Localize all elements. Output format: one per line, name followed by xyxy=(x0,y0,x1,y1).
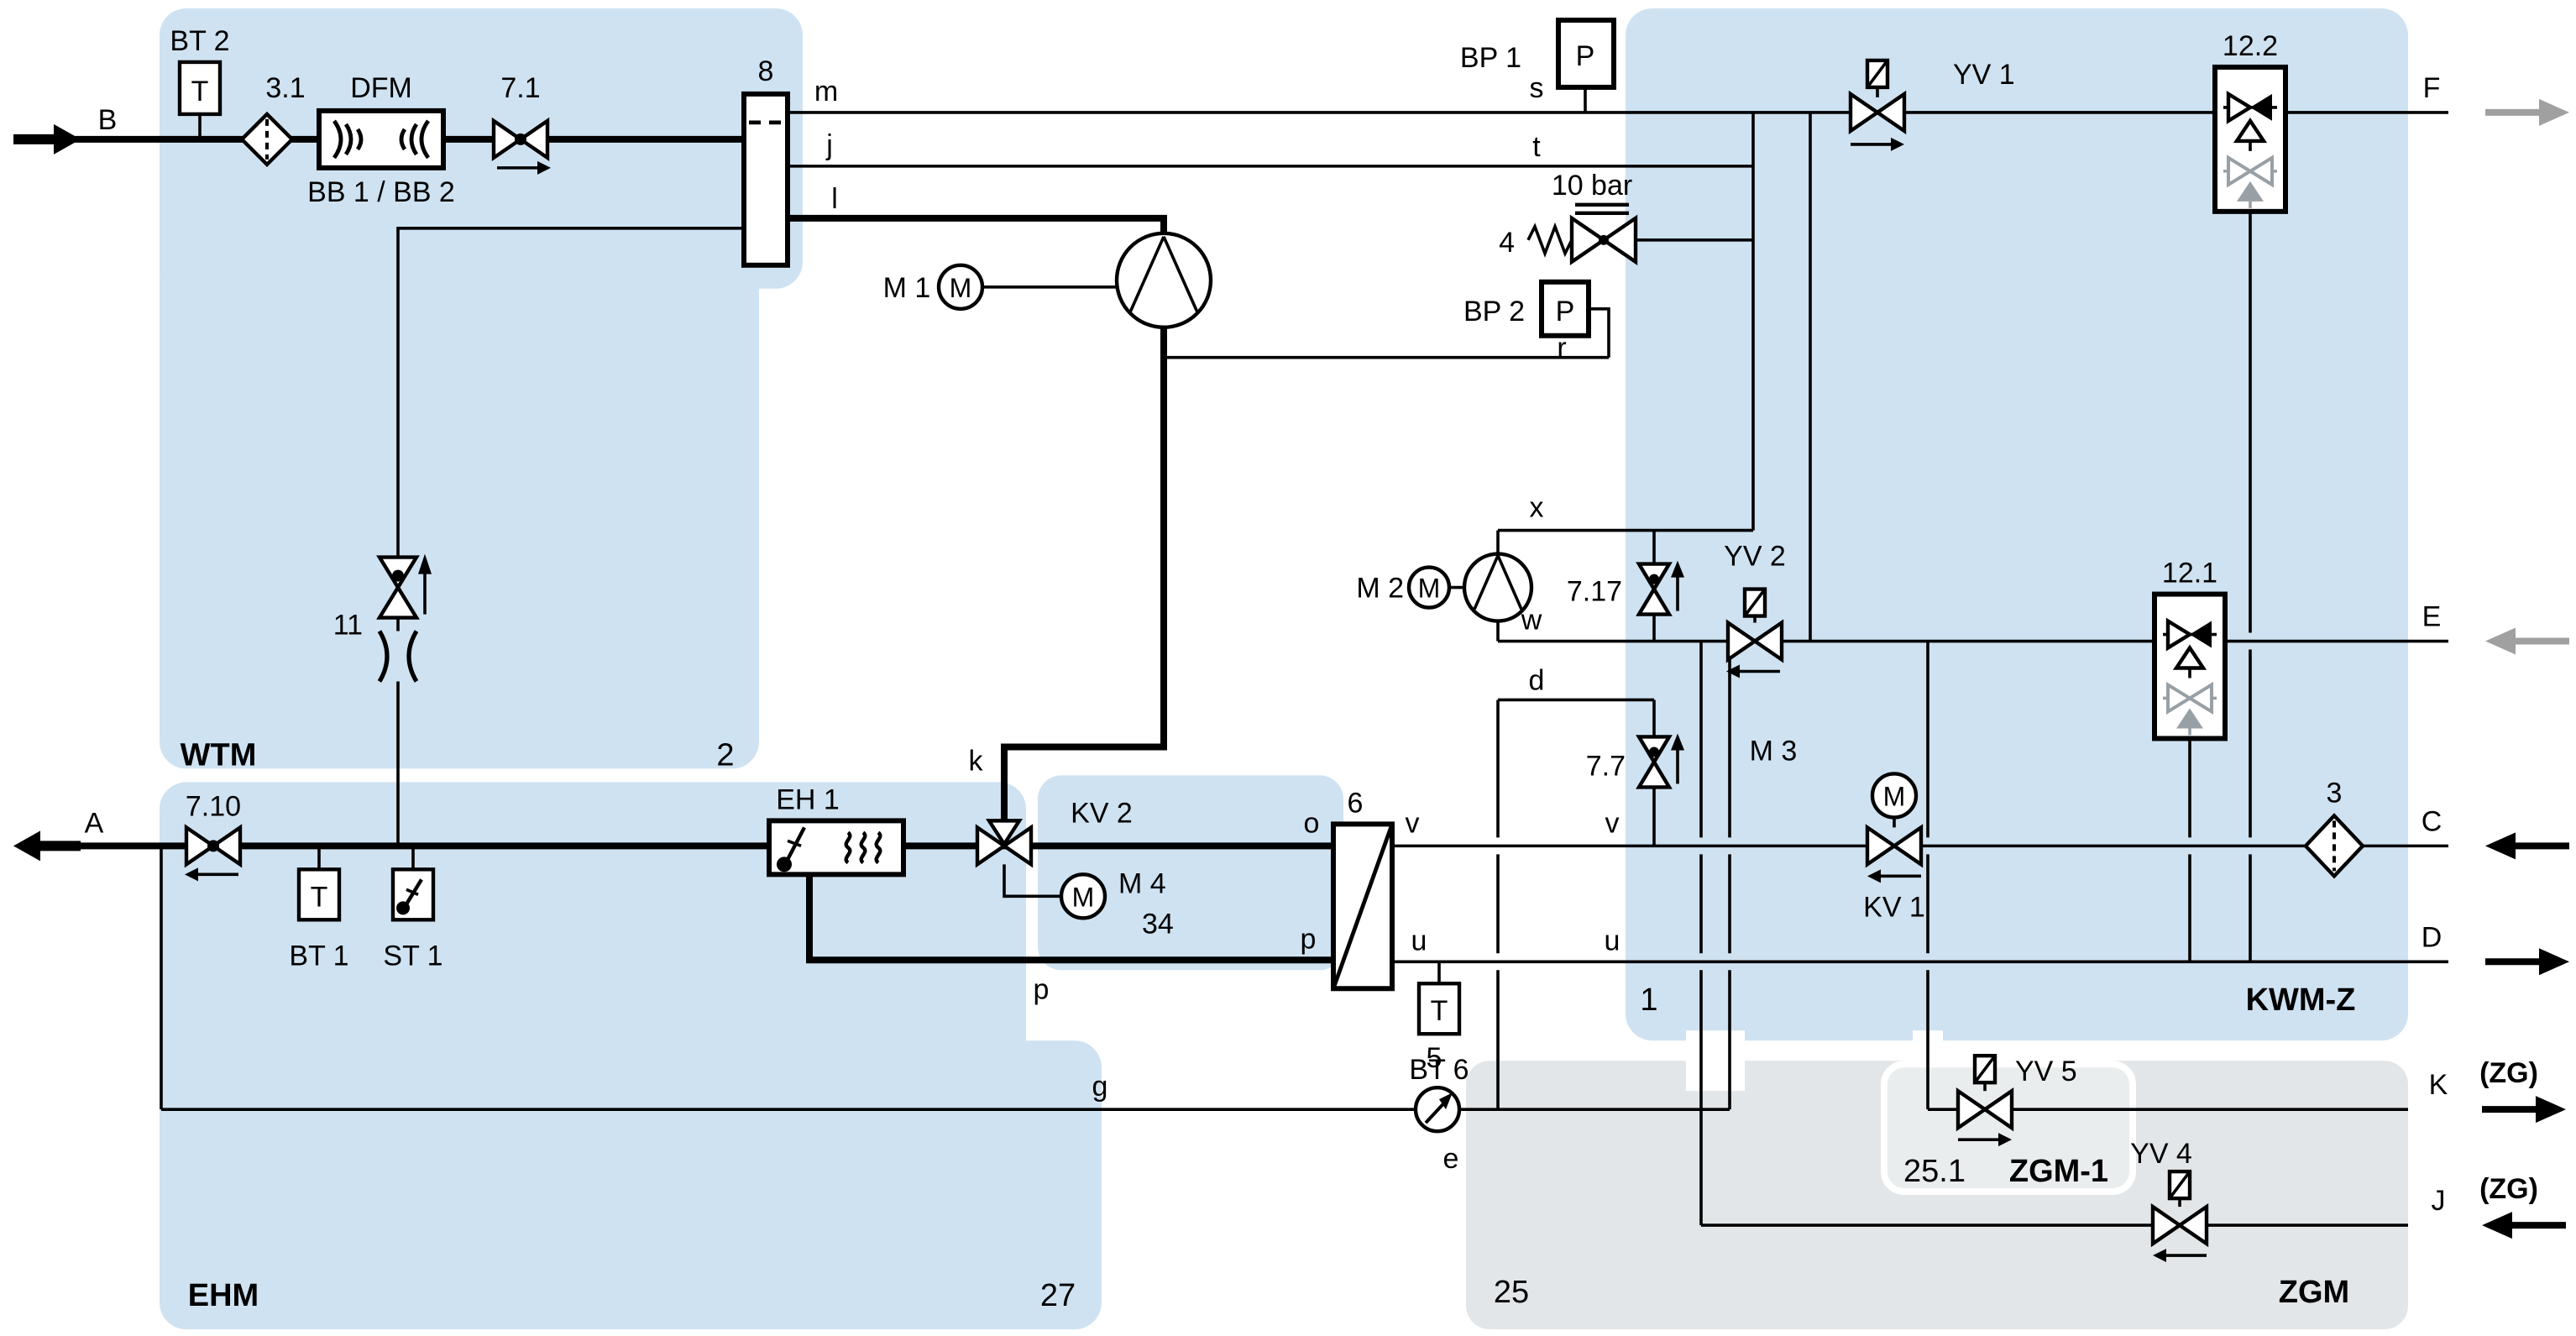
zone-ehm-label: EHM xyxy=(188,1278,259,1313)
terminal-j-label: J xyxy=(2432,1185,2446,1217)
port-k-label: k xyxy=(969,745,984,777)
eh1-label: EH 1 xyxy=(776,783,840,815)
dfm-label: DFM xyxy=(350,72,412,104)
zone-ehm-number: 27 xyxy=(1040,1278,1076,1313)
port-u1-label: u xyxy=(1411,925,1427,956)
kv1-label: KV 1 xyxy=(1863,891,1925,923)
port-p2-label: p xyxy=(1301,923,1317,955)
m3-label: M 3 xyxy=(1750,735,1798,767)
manifold-8-box xyxy=(744,94,788,265)
arrow-e-icon xyxy=(2485,628,2516,655)
zone-zgm1-number: 25.1 xyxy=(1903,1154,1966,1189)
bt2-label: BT 2 xyxy=(170,25,229,57)
terminal-j-zg-label: (ZG) xyxy=(2479,1173,2538,1205)
check-12_1-label: 12.1 xyxy=(2162,558,2217,589)
zone-kv2-label: KV 2 xyxy=(1071,797,1133,829)
arrow-f-icon xyxy=(2539,99,2569,126)
zone-wtm-label: WTM xyxy=(181,737,257,773)
m2-letter: M xyxy=(1418,574,1441,604)
m1-letter: M xyxy=(950,273,972,303)
port-l-label: l xyxy=(831,183,838,215)
arrow-a-icon xyxy=(13,830,40,861)
check-valve-12_1-icon xyxy=(2155,595,2225,739)
pump-m1-icon xyxy=(1117,233,1211,327)
gauge-5-label: 5 xyxy=(1427,1042,1442,1074)
port-m-label: m xyxy=(814,76,838,107)
arrow-k-icon xyxy=(2536,1096,2566,1123)
valve-7_10-label: 7.10 xyxy=(186,790,241,822)
filter-3_1-label: 3.1 xyxy=(265,72,305,104)
pid-diagram: B A F E C D K (ZG) J (ZG) WTM 2 EHM 27 1… xyxy=(0,0,2576,1336)
pipe-l-line xyxy=(788,218,1164,233)
zone-ehm-lower xyxy=(160,1040,1102,1329)
port-g-label: g xyxy=(1092,1071,1108,1103)
zone-kwmz xyxy=(1626,8,2408,1040)
bp2-label: BP 2 xyxy=(1463,296,1525,327)
terminal-a-label: A xyxy=(85,807,104,839)
filter-3-label: 3 xyxy=(2327,777,2343,809)
valve-7_17-label: 7.17 xyxy=(1567,576,1622,608)
yv1-label: YV 1 xyxy=(1953,59,2015,91)
relief-valve-4-icon xyxy=(1528,205,1636,262)
m4-number: 34 xyxy=(1142,908,1174,940)
port-o-label: o xyxy=(1304,807,1320,839)
yv2-label: YV 2 xyxy=(1724,541,1786,573)
bt2-letter: T xyxy=(191,76,209,107)
check-valve-12_2-icon xyxy=(2215,67,2285,212)
arrow-c-icon xyxy=(2485,832,2516,859)
diagram-canvas: B A F E C D K (ZG) J (ZG) WTM 2 EHM 27 1… xyxy=(0,0,2576,1336)
pipe-bp2-loop xyxy=(1589,309,1609,358)
relief-4-label: 4 xyxy=(1499,227,1515,259)
bt6-letter: T xyxy=(1431,995,1448,1027)
port-w-label: w xyxy=(1521,605,1542,637)
port-p1-label: p xyxy=(1034,973,1050,1005)
m2-label: M 2 xyxy=(1356,573,1404,605)
terminal-e-label: E xyxy=(2422,601,2442,633)
pipe-pump-to-kv2 xyxy=(1004,327,1164,828)
port-v1-label: v xyxy=(1406,807,1420,839)
zone-shapes xyxy=(160,8,2408,1329)
relief-setting-label: 10 bar xyxy=(1552,170,1632,202)
arrow-b-icon xyxy=(54,124,81,155)
zone-kwmz-number: 1 xyxy=(1640,982,1657,1018)
port-v2-label: v xyxy=(1605,807,1620,839)
zone-wtm-number: 2 xyxy=(716,737,734,773)
valve-7_1-label: 7.1 xyxy=(500,72,540,104)
terminal-d-label: D xyxy=(2422,921,2442,953)
valve-11-label: 11 xyxy=(333,610,363,642)
terminal-c-label: C xyxy=(2422,805,2442,837)
yv5-label: YV 5 xyxy=(2015,1056,2077,1087)
arrow-j-icon xyxy=(2482,1212,2512,1239)
arrow-d-icon xyxy=(2539,948,2569,975)
zone-kwmz-label: KWM-Z xyxy=(2246,982,2356,1018)
m4-label: M 4 xyxy=(1118,867,1166,899)
m3-letter: M xyxy=(1883,781,1906,811)
m4-letter: M xyxy=(1072,882,1095,912)
port-x-label: x xyxy=(1530,492,1544,524)
bt1-letter: T xyxy=(311,881,328,913)
dfm-box xyxy=(319,111,443,168)
port-s-label: s xyxy=(1530,72,1544,104)
manifold-8-label: 8 xyxy=(758,55,774,87)
port-d-label: d xyxy=(1529,664,1545,696)
yv4-label: YV 4 xyxy=(2130,1138,2192,1170)
bp1-label: BP 1 xyxy=(1460,42,1521,74)
bp1-letter: P xyxy=(1576,40,1595,72)
dfm-sublabel: BB 1 / BB 2 xyxy=(307,176,455,208)
port-j-label: j xyxy=(825,129,833,161)
terminal-k-label: K xyxy=(2429,1069,2448,1101)
bt1-label: BT 1 xyxy=(289,940,348,972)
port-e-label: e xyxy=(1443,1143,1459,1175)
terminal-f-label: F xyxy=(2423,72,2441,104)
bp2-letter: P xyxy=(1556,296,1575,327)
port-r-label: r xyxy=(1557,333,1566,364)
valve-7_7-label: 7.7 xyxy=(1586,750,1626,782)
check-12_2-label: 12.2 xyxy=(2223,30,2278,62)
port-u2-label: u xyxy=(1605,925,1620,956)
st1-label: ST 1 xyxy=(383,940,442,972)
zone-zgm-label: ZGM xyxy=(2279,1275,2349,1310)
terminal-k-zg-label: (ZG) xyxy=(2479,1057,2538,1089)
m1-label: M 1 xyxy=(883,272,931,304)
terminal-b-label: B xyxy=(98,104,118,136)
zone-zgm1-label: ZGM-1 xyxy=(2009,1154,2108,1189)
port-t-label: t xyxy=(1532,131,1541,163)
separator-6-label: 6 xyxy=(1348,787,1364,819)
zone-zgm-number: 25 xyxy=(1494,1275,1529,1310)
